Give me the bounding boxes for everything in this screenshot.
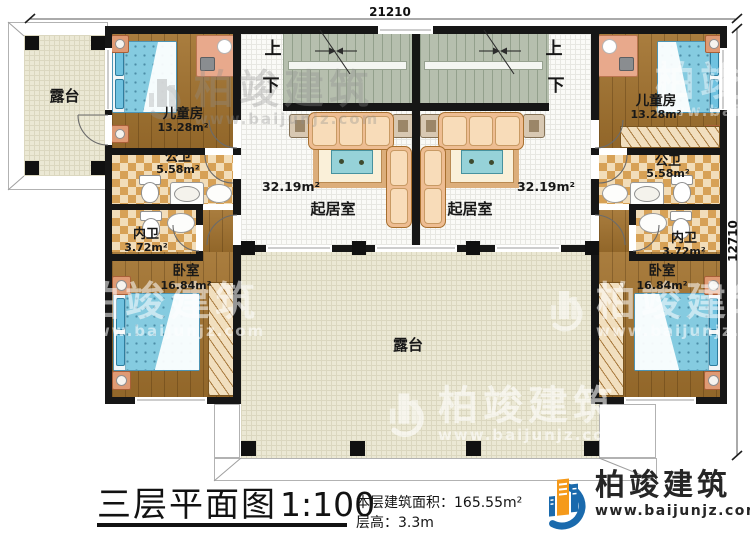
wall xyxy=(420,103,549,111)
stair-down-right-label: 下 xyxy=(545,78,567,95)
door-opening xyxy=(599,148,627,155)
door-opening xyxy=(196,225,203,251)
side-table xyxy=(523,114,545,138)
bottom-terrace-floor xyxy=(241,250,599,458)
sliding-door-opening xyxy=(375,245,457,252)
pillar xyxy=(241,241,255,255)
toilet xyxy=(139,175,161,203)
stair-landing-left xyxy=(288,61,407,70)
brand-logo: 柏竣建筑 www.baijunjz.com xyxy=(536,470,750,534)
stair-landing-right xyxy=(424,61,543,70)
living-right-area: 32.19m² xyxy=(511,181,581,194)
wall xyxy=(629,204,727,210)
wall xyxy=(283,103,412,111)
window xyxy=(495,245,561,252)
pillar xyxy=(91,36,105,50)
sofa-three-seat-left xyxy=(308,112,394,150)
inner-bath-right-label: 内卫 xyxy=(644,232,724,245)
bedroom-left-area: 16.84m² xyxy=(146,280,226,291)
inner-bath-left-label: 内卫 xyxy=(106,228,186,241)
nightstand xyxy=(111,125,129,143)
coffee-table-left xyxy=(331,150,373,174)
living-left-area: 32.19m² xyxy=(256,181,326,194)
window xyxy=(105,48,112,110)
left-terrace-floor xyxy=(24,35,105,176)
brand-name: 柏竣建筑 xyxy=(595,470,750,502)
wall xyxy=(105,254,203,261)
door-opening xyxy=(591,120,599,148)
living-left-label: 起居室 xyxy=(293,202,373,217)
pillar xyxy=(25,36,39,50)
kids-room-right-area: 13.28m² xyxy=(616,109,696,120)
nightstand xyxy=(112,371,131,390)
floor-area-value: 165.55m² xyxy=(454,495,522,511)
floor-info: 本层建筑面积：165.55m² 层高：3.3m xyxy=(356,494,522,533)
pillar xyxy=(241,441,256,456)
bottom-eave-right xyxy=(599,404,656,458)
door-opening xyxy=(591,155,599,179)
sofa-two-seat-left xyxy=(386,146,412,228)
pillar xyxy=(352,241,366,255)
bedroom-bed-left xyxy=(113,293,200,371)
window xyxy=(135,397,207,404)
bedroom-right-area: 16.84m² xyxy=(622,280,702,291)
wash-basin xyxy=(602,184,628,203)
watermark-logo-icon xyxy=(26,285,72,337)
drawing-title-text: 三层平面图 xyxy=(97,477,277,526)
inner-bath-right-area: 3.72m² xyxy=(644,246,724,257)
sofa-three-seat-right xyxy=(438,112,524,150)
floor-height-label: 层高： xyxy=(356,515,398,531)
wardrobe-kids-right xyxy=(620,126,720,148)
kids-room-right-label: 儿童房 xyxy=(616,95,696,109)
stair-up-left-label: 上 xyxy=(262,41,284,58)
bathroom-sink-counter xyxy=(630,182,664,206)
dimension-depth-label: 12710 xyxy=(726,185,740,297)
pillar xyxy=(466,241,480,255)
window xyxy=(624,397,696,404)
bedroom-left-label: 卧室 xyxy=(146,265,226,279)
left-terrace-label: 露台 xyxy=(24,89,105,104)
bedroom-bed-right xyxy=(634,293,721,371)
pillar xyxy=(350,441,365,456)
pillar xyxy=(91,161,105,175)
brand-site: www.baijunjz.com xyxy=(595,503,750,519)
pillar xyxy=(585,241,599,255)
pillar xyxy=(466,441,481,456)
dimension-width-label: 21210 xyxy=(330,5,450,19)
wash-basin xyxy=(206,184,232,203)
floor-area-label: 本层建筑面积： xyxy=(356,495,454,511)
public-bath-left-area: 5.58m² xyxy=(138,164,218,175)
wash-basin xyxy=(639,213,667,233)
bedroom-right-label: 卧室 xyxy=(622,265,702,279)
door-opening xyxy=(233,215,241,245)
bathroom-sink-counter xyxy=(170,182,204,206)
kids-room-left-area: 13.28m² xyxy=(143,122,223,133)
bottom-terrace-label: 露台 xyxy=(368,338,448,353)
kids-desk-right xyxy=(598,35,638,77)
door-opening xyxy=(105,115,112,145)
public-bath-right-area: 5.58m² xyxy=(628,168,708,179)
floor-height-value: 3.3m xyxy=(398,515,434,531)
pillar xyxy=(584,441,599,456)
stair-down-left-label: 下 xyxy=(260,78,282,95)
nightstand xyxy=(112,276,131,295)
kids-desk-left xyxy=(196,35,236,77)
floor-height-line: 层高：3.3m xyxy=(356,514,522,534)
living-right-label: 起居室 xyxy=(430,202,510,217)
bottom-eave-left xyxy=(214,404,240,458)
coffee-table-right xyxy=(461,150,503,174)
window xyxy=(378,26,433,34)
floor-area-line: 本层建筑面积：165.55m² xyxy=(356,494,522,514)
door-opening xyxy=(233,155,241,179)
wall xyxy=(412,26,420,252)
window xyxy=(720,48,727,110)
door-opening xyxy=(629,225,636,251)
kids-room-left-label: 儿童房 xyxy=(143,108,223,122)
stair-up-right-label: 上 xyxy=(543,41,565,58)
wardrobe-left xyxy=(208,282,234,396)
brand-logo-icon xyxy=(536,470,588,534)
drawing-title: 三层平面图 1:100 xyxy=(97,477,375,526)
window xyxy=(266,245,332,252)
wardrobe-right xyxy=(598,282,624,396)
side-table xyxy=(392,114,414,138)
wall xyxy=(105,204,203,210)
nightstand xyxy=(111,35,129,53)
inner-bath-left-area: 3.72m² xyxy=(106,242,186,253)
door-opening xyxy=(233,120,241,148)
floor-plan-canvas: 21210 12710 露台 儿童房 13.28m² 公卫 5.58m² 内卫 … xyxy=(0,0,750,540)
title-underline xyxy=(97,523,347,527)
pillar xyxy=(25,161,39,175)
